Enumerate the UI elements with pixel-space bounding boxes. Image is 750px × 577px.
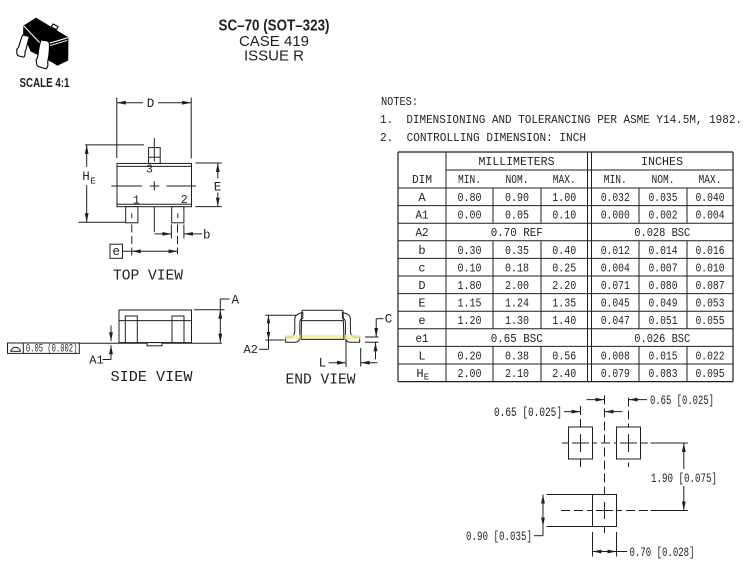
svg-text:0.05: 0.05 — [505, 209, 529, 223]
svg-text:0.25: 0.25 — [552, 261, 576, 275]
svg-text:E: E — [214, 180, 222, 194]
svg-text:0.65 [0.025]: 0.65 [0.025] — [494, 406, 562, 420]
svg-text:NOTES:: NOTES: — [381, 95, 418, 109]
svg-text:b: b — [418, 244, 425, 258]
svg-text:e: e — [418, 314, 425, 328]
svg-text:ISSUE R: ISSUE R — [244, 48, 304, 65]
svg-text:0.016: 0.016 — [696, 244, 725, 258]
svg-text:1.40: 1.40 — [552, 314, 576, 328]
svg-text:1.35: 1.35 — [552, 297, 576, 311]
svg-text:0.040: 0.040 — [696, 191, 725, 205]
svg-text:e1: e1 — [416, 332, 429, 346]
svg-text:E: E — [90, 177, 95, 187]
svg-text:0.087: 0.087 — [696, 279, 725, 293]
svg-text:1.24: 1.24 — [505, 297, 529, 311]
svg-text:0.055: 0.055 — [696, 314, 725, 328]
svg-text:2.20: 2.20 — [552, 279, 576, 293]
svg-text:0.70 [0.028]: 0.70 [0.028] — [630, 546, 695, 560]
svg-text:0.083: 0.083 — [649, 367, 678, 381]
svg-text:A2: A2 — [416, 226, 429, 240]
svg-text:0.049: 0.049 — [649, 297, 678, 311]
svg-text:1.15: 1.15 — [458, 297, 482, 311]
svg-text:2.10: 2.10 — [505, 367, 529, 381]
svg-text:0.10: 0.10 — [458, 261, 482, 275]
svg-text:0.65 BSC: 0.65 BSC — [491, 332, 543, 346]
svg-text:1.30: 1.30 — [505, 314, 529, 328]
svg-text:E: E — [424, 373, 429, 383]
svg-text:0.004: 0.004 — [601, 261, 630, 275]
svg-text:0.000: 0.000 — [601, 209, 630, 223]
svg-text:0.012: 0.012 — [601, 244, 630, 258]
svg-text:0.90: 0.90 — [505, 191, 529, 205]
svg-text:D: D — [418, 279, 425, 293]
svg-text:H: H — [82, 170, 90, 184]
svg-text:0.053: 0.053 — [696, 297, 725, 311]
svg-text:0.028 BSC: 0.028 BSC — [634, 226, 690, 240]
svg-text:0.00: 0.00 — [458, 209, 482, 223]
svg-text:NOM.: NOM. — [506, 173, 529, 187]
svg-text:SCALE 4:1: SCALE 4:1 — [20, 75, 70, 90]
svg-text:0.20: 0.20 — [458, 349, 482, 363]
svg-text:0.05 (0.002): 0.05 (0.002) — [26, 344, 78, 356]
svg-text:0.90 [0.035]: 0.90 [0.035] — [466, 530, 532, 544]
svg-text:1.00: 1.00 — [552, 191, 576, 205]
svg-text:0.38: 0.38 — [505, 349, 529, 363]
svg-text:1.80: 1.80 — [458, 279, 482, 293]
svg-text:MAX.: MAX. — [699, 173, 722, 187]
svg-text:A: A — [232, 294, 240, 308]
svg-text:0.080: 0.080 — [649, 279, 678, 293]
svg-text:0.014: 0.014 — [649, 244, 678, 258]
svg-text:0.047: 0.047 — [601, 314, 630, 328]
svg-text:0.022: 0.022 — [696, 349, 725, 363]
svg-text:0.008: 0.008 — [601, 349, 630, 363]
svg-text:0.10: 0.10 — [552, 209, 576, 223]
svg-text:0.032: 0.032 — [601, 191, 630, 205]
svg-text:0.035: 0.035 — [649, 191, 678, 205]
svg-text:0.002: 0.002 — [649, 209, 678, 223]
svg-text:3: 3 — [146, 164, 153, 177]
svg-text:E: E — [418, 297, 425, 311]
svg-text:e: e — [112, 245, 120, 259]
svg-text:0.015: 0.015 — [649, 349, 678, 363]
svg-text:H: H — [416, 367, 423, 381]
svg-text:1.20: 1.20 — [458, 314, 482, 328]
svg-text:A: A — [418, 191, 426, 205]
svg-text:0.051: 0.051 — [649, 314, 678, 328]
svg-text:MILLIMETERS: MILLIMETERS — [479, 155, 555, 169]
svg-text:DIM: DIM — [412, 173, 432, 187]
svg-text:MIN.: MIN. — [458, 173, 481, 187]
svg-text:L: L — [418, 349, 425, 363]
svg-text:2. CONTROLLING DIMENSION: INC: 2. CONTROLLING DIMENSION: INCH — [380, 131, 586, 145]
svg-text:0.007: 0.007 — [649, 261, 678, 275]
svg-text:TOP VIEW: TOP VIEW — [113, 269, 183, 285]
svg-text:c: c — [418, 261, 425, 275]
svg-text:2.00: 2.00 — [458, 367, 482, 381]
svg-text:INCHES: INCHES — [641, 155, 683, 169]
svg-text:0.35: 0.35 — [505, 244, 529, 258]
svg-text:END VIEW: END VIEW — [286, 373, 356, 389]
svg-text:0.40: 0.40 — [552, 244, 576, 258]
svg-text:2.00: 2.00 — [505, 279, 529, 293]
svg-text:A2: A2 — [244, 343, 258, 357]
svg-text:b: b — [203, 228, 211, 242]
svg-text:MIN.: MIN. — [604, 173, 627, 187]
svg-text:0.045: 0.045 — [601, 297, 630, 311]
svg-text:0.65 [0.025]: 0.65 [0.025] — [650, 394, 714, 408]
svg-text:0.010: 0.010 — [696, 261, 725, 275]
svg-text:1: 1 — [133, 194, 140, 207]
svg-text:NOM.: NOM. — [652, 173, 675, 187]
svg-text:A1: A1 — [416, 209, 429, 223]
svg-text:A1: A1 — [89, 353, 103, 367]
svg-text:0.80: 0.80 — [458, 191, 482, 205]
svg-text:SIDE VIEW: SIDE VIEW — [111, 370, 193, 386]
svg-text:0.70 REF: 0.70 REF — [491, 226, 543, 240]
svg-text:2: 2 — [181, 194, 188, 207]
svg-text:0.30: 0.30 — [458, 244, 482, 258]
svg-text:L: L — [319, 357, 327, 371]
svg-text:0.095: 0.095 — [696, 367, 725, 381]
svg-text:C: C — [385, 312, 393, 326]
svg-text:2.40: 2.40 — [552, 367, 576, 381]
svg-text:MAX.: MAX. — [553, 173, 576, 187]
svg-text:1. DIMENSIONING AND TOLERANCI: 1. DIMENSIONING AND TOLERANCING PER ASME… — [380, 113, 742, 127]
svg-text:0.071: 0.071 — [601, 279, 630, 293]
svg-text:0.026 BSC: 0.026 BSC — [634, 332, 690, 346]
svg-text:0.56: 0.56 — [552, 349, 576, 363]
svg-text:1.90 [0.075]: 1.90 [0.075] — [651, 472, 717, 486]
svg-text:0.079: 0.079 — [601, 367, 630, 381]
svg-text:0.18: 0.18 — [505, 261, 529, 275]
svg-text:0.004: 0.004 — [696, 209, 725, 223]
svg-text:SC–70 (SOT–323): SC–70 (SOT–323) — [219, 18, 330, 35]
svg-text:D: D — [147, 97, 155, 111]
